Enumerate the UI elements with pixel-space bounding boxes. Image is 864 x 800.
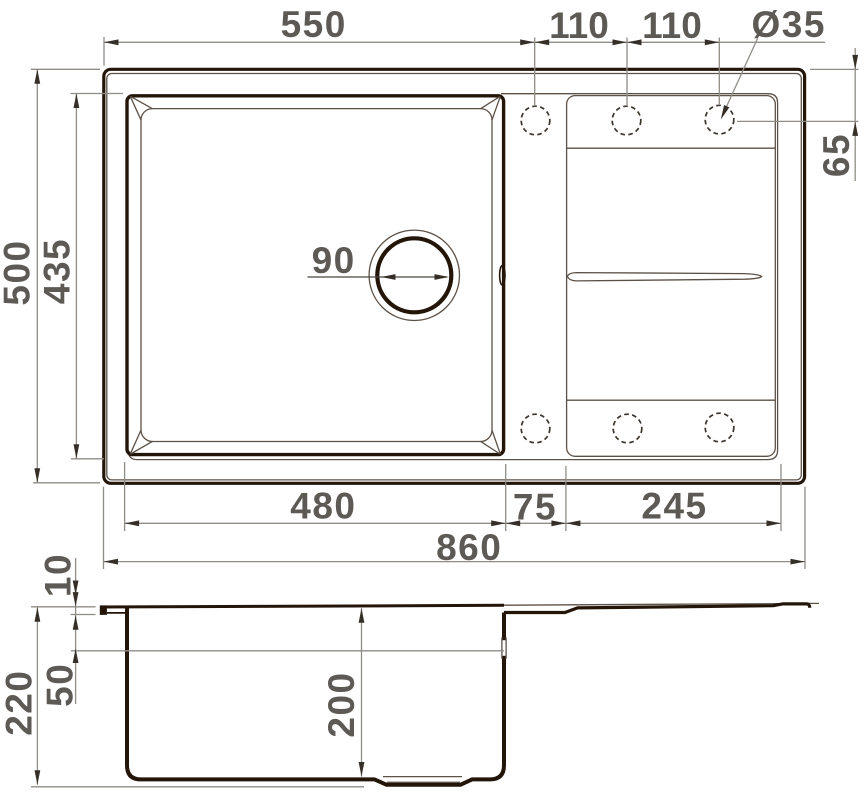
svg-text:110: 110 [642,5,702,46]
svg-text:480: 480 [290,486,356,527]
svg-text:860: 860 [436,527,502,568]
svg-text:110: 110 [549,5,609,46]
svg-text:10: 10 [38,553,79,597]
svg-text:245: 245 [641,486,707,527]
svg-text:Ø35: Ø35 [751,4,825,45]
svg-text:550: 550 [281,4,347,45]
svg-text:435: 435 [37,238,78,304]
svg-text:220: 220 [0,670,40,736]
svg-text:500: 500 [0,239,38,305]
svg-text:90: 90 [312,240,356,281]
svg-text:65: 65 [816,133,857,177]
svg-text:75: 75 [513,487,557,528]
svg-text:50: 50 [39,663,80,707]
svg-text:200: 200 [321,671,362,737]
